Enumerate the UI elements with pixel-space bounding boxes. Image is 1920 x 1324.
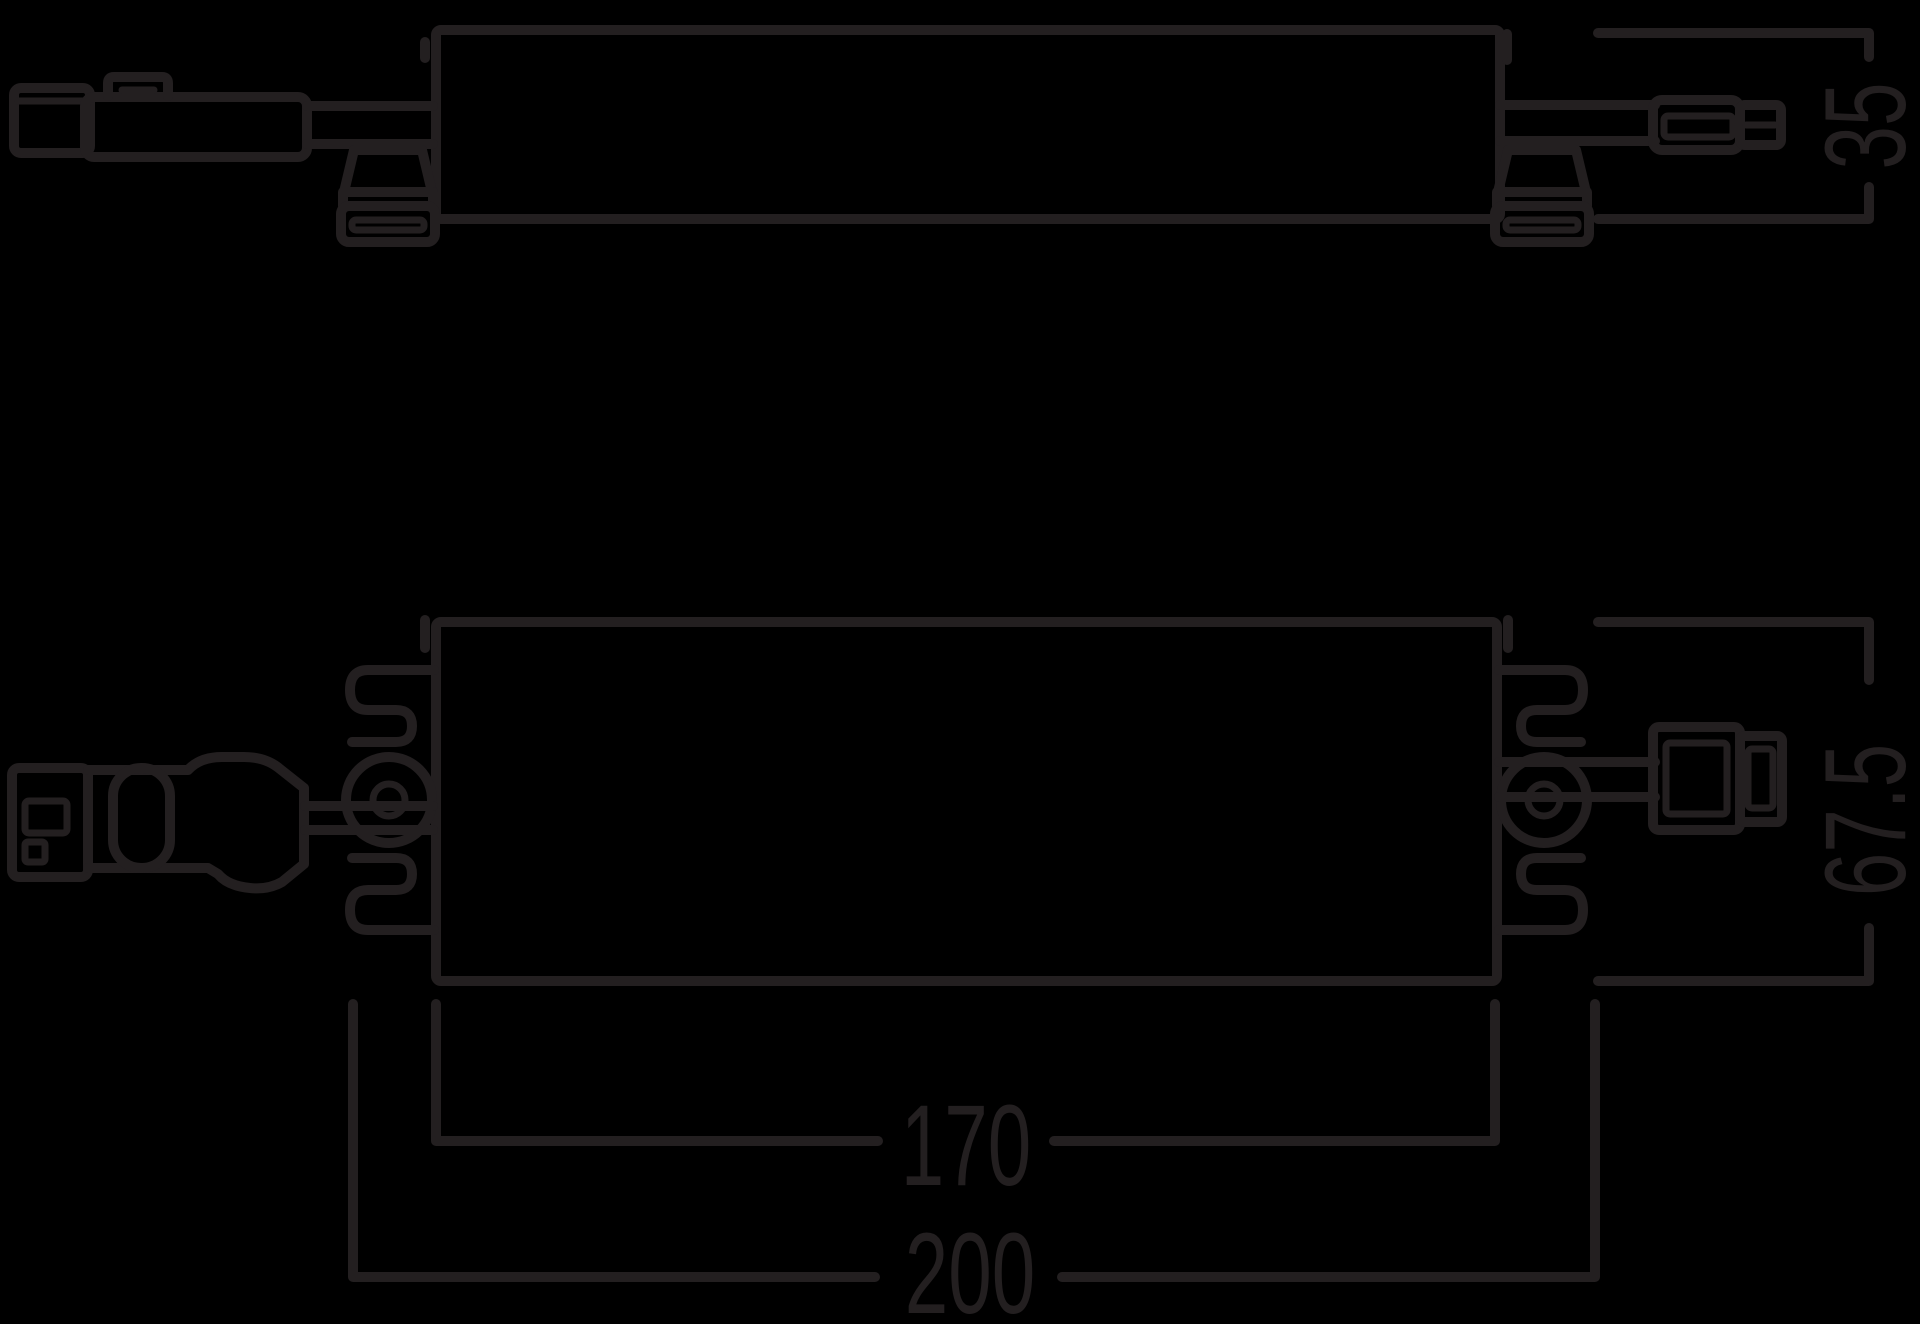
clip-foot-slot bbox=[352, 220, 424, 230]
clip-foot-slot bbox=[1506, 220, 1578, 230]
side-view-body bbox=[436, 30, 1500, 219]
dimension-35-bottom-extension bbox=[1598, 187, 1869, 219]
side-view: 35 bbox=[14, 30, 1920, 242]
dimension-35-label: 35 bbox=[1801, 83, 1920, 170]
clip-spring-upper bbox=[350, 670, 434, 742]
top-view-clip-left bbox=[346, 670, 434, 930]
input-plug-tip-detail-small bbox=[25, 842, 45, 862]
dimension-170-label: 170 bbox=[901, 1081, 1031, 1210]
dimension-170-left-extension bbox=[436, 1004, 878, 1141]
technical-drawing-page: 35 bbox=[0, 0, 1920, 1324]
side-view-clip-right bbox=[1495, 150, 1589, 242]
dimension-67-5-top-extension bbox=[1598, 622, 1869, 680]
clip-wedge bbox=[1498, 150, 1586, 192]
dimension-67-5-label: 67.5 bbox=[1801, 744, 1920, 896]
output-plug-barrel-detail bbox=[1748, 749, 1773, 808]
clip-wedge bbox=[344, 150, 432, 192]
top-view-body bbox=[436, 622, 1497, 981]
dimension-35-top-extension bbox=[1598, 33, 1869, 57]
input-plug-boot bbox=[113, 768, 170, 868]
dimension-200-label: 200 bbox=[905, 1209, 1035, 1324]
side-view-output-connector bbox=[1500, 100, 1781, 150]
dimension-170: 170 bbox=[436, 1004, 1495, 1210]
dimension-drawing: 35 bbox=[0, 0, 1920, 1324]
output-plug-housing-detail bbox=[1666, 743, 1727, 814]
top-view-input-connector bbox=[12, 757, 433, 888]
clip-spring-lower bbox=[1499, 858, 1583, 930]
top-view: 67.5 bbox=[12, 620, 1920, 981]
dimension-170-right-extension bbox=[1054, 1004, 1495, 1141]
dimension-67-5-bottom-extension bbox=[1598, 928, 1869, 981]
side-view-clip-left bbox=[341, 150, 435, 242]
clip-eyelet-inner bbox=[373, 784, 405, 816]
input-plug-tip-detail bbox=[25, 801, 67, 833]
output-plug-housing-detail bbox=[1664, 116, 1733, 137]
input-plug-housing bbox=[85, 97, 307, 157]
clip-spring-upper bbox=[1499, 670, 1583, 742]
clip-spring-lower bbox=[350, 858, 434, 930]
